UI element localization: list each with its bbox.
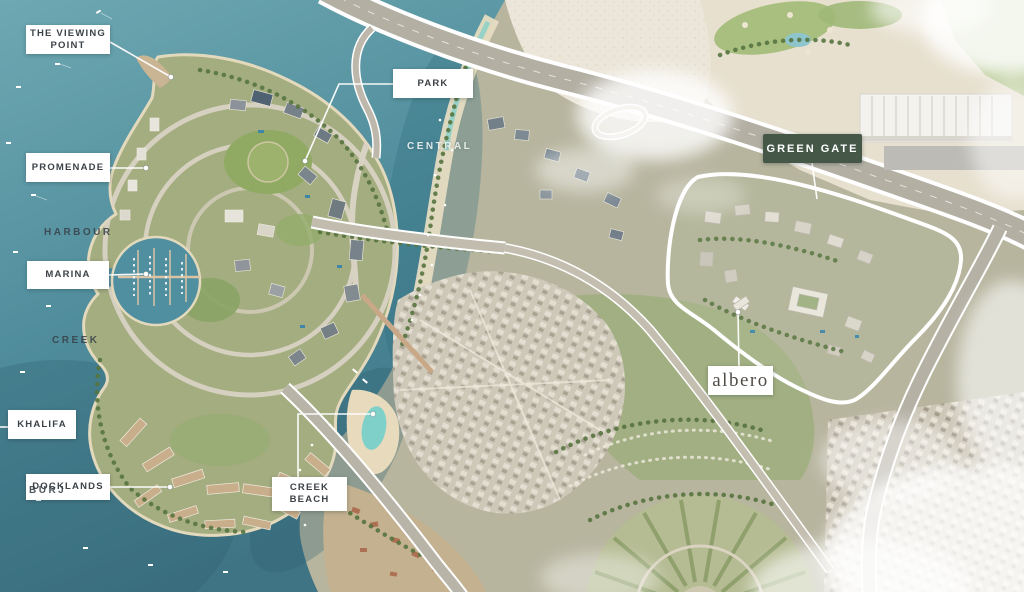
map-label-harbour: HARBOUR — [44, 227, 113, 238]
callout-khalifa: KHALIFA — [8, 410, 76, 439]
callout-line: POINT — [50, 40, 85, 52]
callout-promenade: PROMENADE — [26, 153, 110, 182]
callout-line: BEACH — [290, 494, 330, 506]
callout-line: MARINA — [45, 269, 90, 281]
masterplan-map: THE VIEWING POINT PARK PROMENADE MARINA … — [0, 0, 1024, 592]
albero-logo-text: albero — [712, 370, 768, 392]
callout-the-viewing-point: THE VIEWING POINT — [26, 25, 110, 54]
map-label-burj: BURJ — [29, 485, 66, 496]
green-gate-tag[interactable]: GREEN GATE — [763, 134, 862, 163]
map-label-central: CENTRAL — [407, 141, 472, 152]
callout-line: THE VIEWING — [30, 28, 106, 40]
callout-line: KHALIFA — [17, 419, 67, 431]
green-gate-label: GREEN GATE — [767, 143, 859, 155]
callout-marina: MARINA — [27, 261, 109, 289]
callout-line: PROMENADE — [32, 162, 105, 174]
callout-park: PARK — [393, 69, 473, 98]
callout-line: PARK — [417, 78, 448, 90]
albero-logo[interactable]: albero — [708, 366, 773, 395]
callout-line: CREEK — [290, 482, 329, 494]
map-canvas — [0, 0, 1024, 592]
callout-creek-beach: CREEK BEACH — [272, 477, 347, 511]
map-label-creek: CREEK — [52, 335, 100, 346]
